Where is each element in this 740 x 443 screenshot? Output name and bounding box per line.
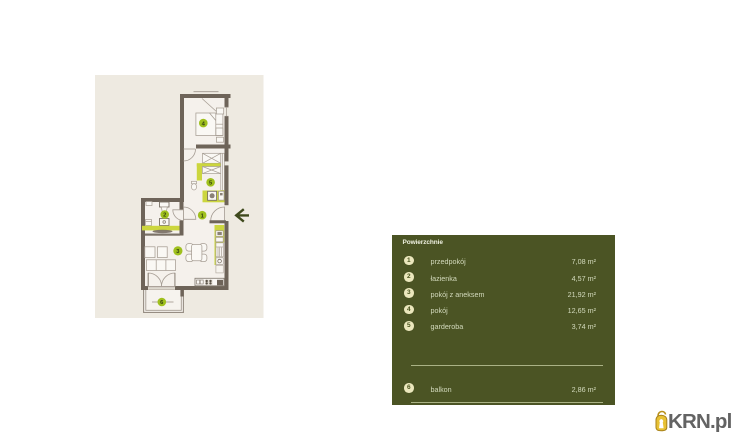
svg-text:2: 2 — [163, 213, 166, 219]
